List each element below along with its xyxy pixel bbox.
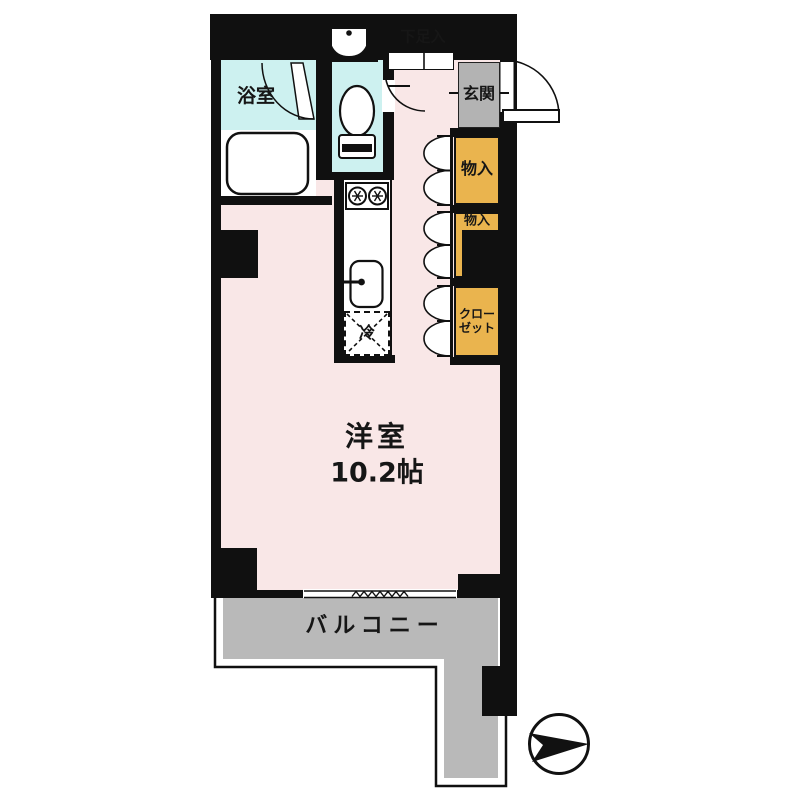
pillar-storage2 — [462, 230, 517, 278]
pillar-bottom-right — [458, 574, 502, 592]
main-room-name: 洋室 — [345, 421, 409, 453]
wall-sep-storage2 — [450, 278, 517, 286]
toilet-room-floor — [332, 60, 383, 172]
pillar-balcony — [482, 666, 517, 716]
wall-toilet-hall — [383, 52, 394, 180]
wall-kitchen-bottom — [334, 355, 395, 363]
toilet-door-gap — [382, 80, 395, 112]
wall-top — [210, 14, 517, 60]
storage-1-label: 物入 — [461, 160, 493, 178]
shoe-box-label: 下足入 — [400, 28, 445, 45]
floor-plan: 浴室 下足入 玄関 物入 物入 クロー ゼット 冷 洋室 10.2帖 バルコニー — [0, 0, 800, 800]
wall-kitchen-left — [334, 180, 343, 363]
shoe-cabinet — [388, 52, 454, 70]
wall-below-bath — [211, 196, 332, 205]
bathtub-area — [221, 130, 316, 196]
closet-label-line1: クロー — [459, 307, 495, 321]
window-gap — [303, 589, 457, 599]
closet-label: クロー ゼット — [459, 308, 495, 336]
fridge-label: 冷 — [359, 324, 375, 342]
wall-right — [500, 14, 517, 716]
pillar-bottom-left — [217, 548, 257, 592]
wall-sep-storage1 — [450, 205, 517, 213]
wall-sep-entrance — [450, 128, 517, 137]
pillar-left — [211, 230, 258, 278]
storage-2-label: 物入 — [464, 215, 490, 230]
north-arrow-icon — [529, 715, 589, 774]
front-door — [503, 60, 559, 122]
balcony-label: バルコニー — [305, 613, 445, 638]
front-door-opening — [501, 62, 514, 112]
wall-sep-closet — [450, 357, 517, 365]
closet-label-line2: ゼット — [459, 321, 495, 335]
main-room-size: 10.2帖 — [330, 457, 424, 488]
entrance-label: 玄関 — [463, 85, 495, 103]
closet-front-line — [450, 128, 453, 365]
bathroom-label: 浴室 — [237, 86, 275, 108]
wall-bath-divider — [316, 60, 332, 180]
wall-left — [211, 14, 221, 592]
